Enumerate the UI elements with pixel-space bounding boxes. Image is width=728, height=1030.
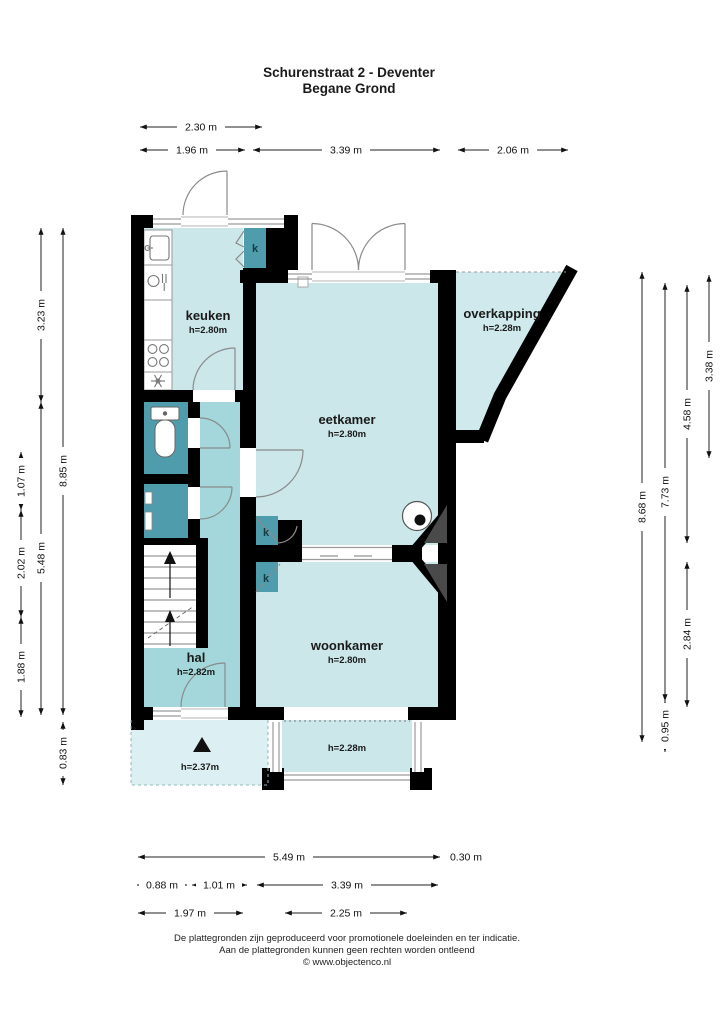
page-title: Schurenstraat 2 - Deventer Begane Grond bbox=[263, 65, 436, 96]
floorplan-page: Schurenstraat 2 - Deventer Begane Grond bbox=[0, 0, 728, 1030]
label-woonkamer: woonkamer bbox=[310, 638, 383, 653]
dim-label: 1.07 m bbox=[16, 465, 28, 497]
dimensions-top: 2.30 m 1.96 m 3.39 m 2.06 m bbox=[140, 121, 568, 157]
label-closet-upper: k bbox=[263, 527, 270, 539]
dim-label: 3.39 m bbox=[330, 145, 362, 157]
dimensions-left: 3.23 m 5.48 m 8.85 m 1.07 m 2.02 m 1.88 … bbox=[15, 228, 70, 785]
dim-label: 3.38 m bbox=[704, 350, 716, 382]
dim-label: 1.88 m bbox=[16, 651, 28, 683]
dim-label: 2.30 m bbox=[185, 122, 217, 134]
dim-label: 0.95 m bbox=[660, 710, 672, 742]
label-hal: hal bbox=[187, 650, 206, 665]
dimensions-bottom: 5.49 m 0.30 m 0.88 m 1.01 m 3.39 m 1.97 … bbox=[137, 851, 482, 920]
title-line1: Schurenstraat 2 - Deventer bbox=[263, 65, 436, 80]
dim-label: 2.02 m bbox=[16, 547, 28, 579]
dim-label: 5.49 m bbox=[273, 852, 305, 864]
dim-label: 4.58 m bbox=[682, 398, 694, 430]
footer-line1: De plattegronden zijn geproduceerd voor … bbox=[174, 933, 520, 944]
stove-heater-icon bbox=[403, 502, 432, 531]
dim-label: 8.68 m bbox=[637, 491, 649, 523]
title-line2: Begane Grond bbox=[302, 81, 395, 96]
dim-label: 2.25 m bbox=[330, 908, 362, 920]
label-eetkamer: eetkamer bbox=[318, 412, 375, 427]
room-woonkamer bbox=[256, 562, 438, 707]
label-woonkamer-h: h=2.80m bbox=[328, 655, 366, 666]
dim-label: 1.01 m bbox=[203, 880, 235, 892]
label-closet-lower: k bbox=[263, 573, 270, 585]
dim-label: 1.96 m bbox=[176, 145, 208, 157]
dim-label: 5.48 m bbox=[36, 542, 48, 574]
dim-label: 0.83 m bbox=[58, 737, 70, 769]
floorplan-drawing: Schurenstraat 2 - Deventer Begane Grond bbox=[0, 0, 728, 1030]
footer-disclaimer: De plattegronden zijn geproduceerd voor … bbox=[174, 933, 520, 968]
label-keuken-h: h=2.80m bbox=[189, 325, 227, 336]
door-kitchen-back bbox=[183, 171, 227, 215]
dim-label: 2.06 m bbox=[497, 145, 529, 157]
label-overkapping: overkapping bbox=[463, 306, 540, 321]
dim-label: 1.97 m bbox=[174, 908, 206, 920]
label-closet-kitchen: k bbox=[252, 243, 259, 255]
footer-line2: Aan de plattegronden kunnen geen rechten… bbox=[219, 945, 475, 956]
label-overkapping-h: h=2.28m bbox=[483, 323, 521, 334]
dim-label: 3.23 m bbox=[36, 299, 48, 331]
dim-label: 8.85 m bbox=[58, 455, 70, 487]
label-bay-h: h=2.28m bbox=[328, 743, 366, 754]
label-keuken: keuken bbox=[186, 308, 231, 323]
toilet-fixture bbox=[151, 407, 179, 457]
porch-area bbox=[131, 720, 268, 785]
label-eetkamer-h: h=2.80m bbox=[328, 429, 366, 440]
dim-label: 0.88 m bbox=[146, 880, 178, 892]
dim-label: 3.39 m bbox=[331, 880, 363, 892]
label-hal-h: h=2.82m bbox=[177, 667, 215, 678]
dim-label: 0.30 m bbox=[450, 852, 482, 864]
label-porch-h: h=2.37m bbox=[181, 762, 219, 773]
dim-label: 2.84 m bbox=[682, 618, 694, 650]
dim-label: 7.73 m bbox=[660, 476, 672, 508]
footer-line3: © www.objectenco.nl bbox=[303, 957, 391, 968]
kitchen-counter bbox=[144, 230, 172, 390]
dimensions-right: 8.68 m 7.73 m 0.95 m 4.58 m 2.84 m 3.38 … bbox=[636, 272, 716, 752]
door-french-eetkamer bbox=[312, 224, 405, 271]
